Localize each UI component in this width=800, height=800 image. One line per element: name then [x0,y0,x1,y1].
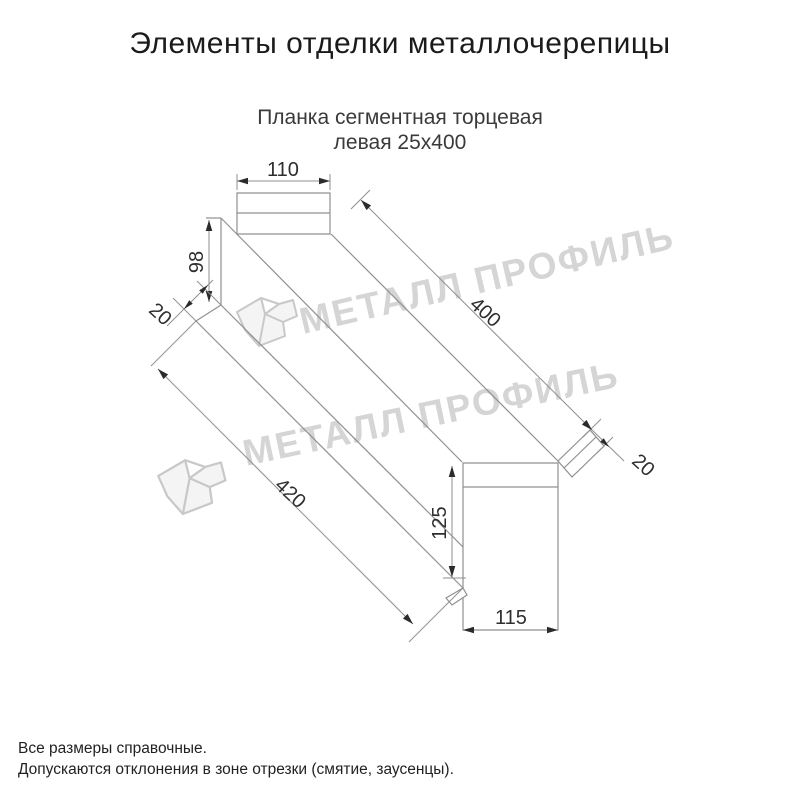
metall-profil-logo-icon [237,298,297,346]
dimension-end-hem: 20 [592,430,659,481]
dim-label-bottom-length: 420 [270,474,309,513]
dim-label-end-hem: 20 [627,450,658,481]
watermark-2: МЕТАЛЛ ПРОФИЛЬ [158,354,622,514]
footnote-line2: Допускаются отклонения в зоне отрезки (с… [18,759,778,780]
dimension-end-width: 115 [463,607,558,630]
dim-label-top-width: 110 [267,159,299,181]
dimension-end-height: 125 [429,466,466,578]
catalog-page: Элементы отделки металлочерепицы Планка … [0,0,800,800]
dim-label-end-width: 115 [495,607,527,629]
technical-drawing: МЕТАЛЛ ПРОФИЛЬ МЕТАЛЛ ПРОФИЛЬ [0,0,800,800]
metall-profil-logo-icon [158,460,225,514]
footnotes: Все размеры справочные. Допускаются откл… [18,738,778,780]
dim-label-end-height: 125 [429,506,451,539]
dimension-top-width: 110 [237,159,330,190]
footnote-line1: Все размеры справочные. [18,738,778,759]
dimension-left-hem: 20 [144,280,221,330]
dim-label-left-height: 98 [186,251,208,273]
watermark-1: МЕТАЛЛ ПРОФИЛЬ [237,216,678,346]
dim-label-left-hem: 20 [144,299,175,330]
